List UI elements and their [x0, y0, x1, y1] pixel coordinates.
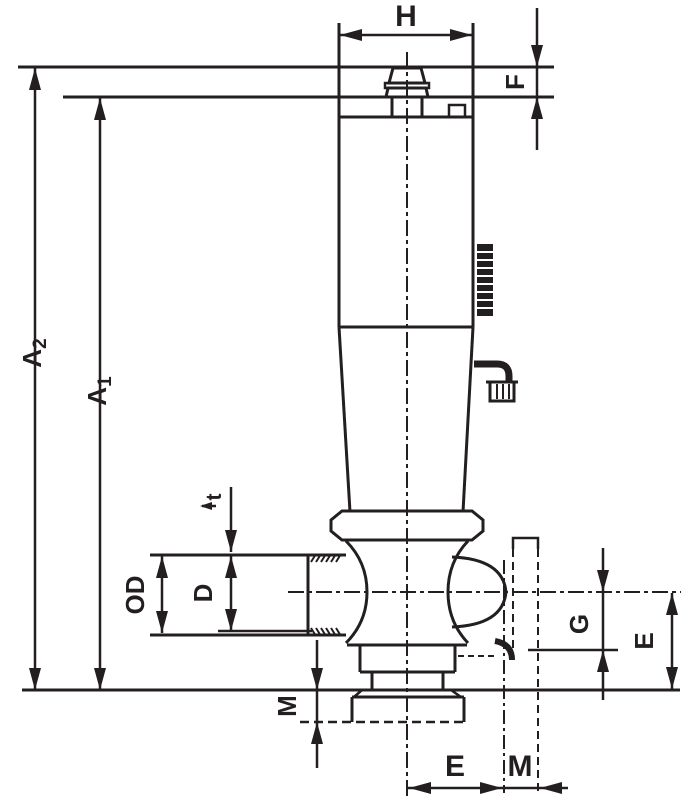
knurl-body [477, 244, 493, 316]
dim-label-od: OD [120, 576, 150, 615]
dim-label-e-right: E [629, 632, 659, 649]
dim-label-f: F [500, 74, 530, 90]
dim-label-g: G [564, 614, 594, 634]
dim-label-d: D [188, 584, 218, 603]
dim-label-e-bottom: E [445, 750, 465, 783]
dim-label-m-left: M [272, 695, 302, 717]
dim-label-h: H [395, 0, 417, 33]
dim-label-t: t [203, 494, 226, 501]
technical-drawing: H F A2 A1 t OD D [0, 0, 686, 800]
knurl-patch [477, 244, 493, 316]
drawing-canvas: H F A2 A1 t OD D [0, 0, 686, 800]
dim-label-m-bottom: M [508, 750, 533, 783]
